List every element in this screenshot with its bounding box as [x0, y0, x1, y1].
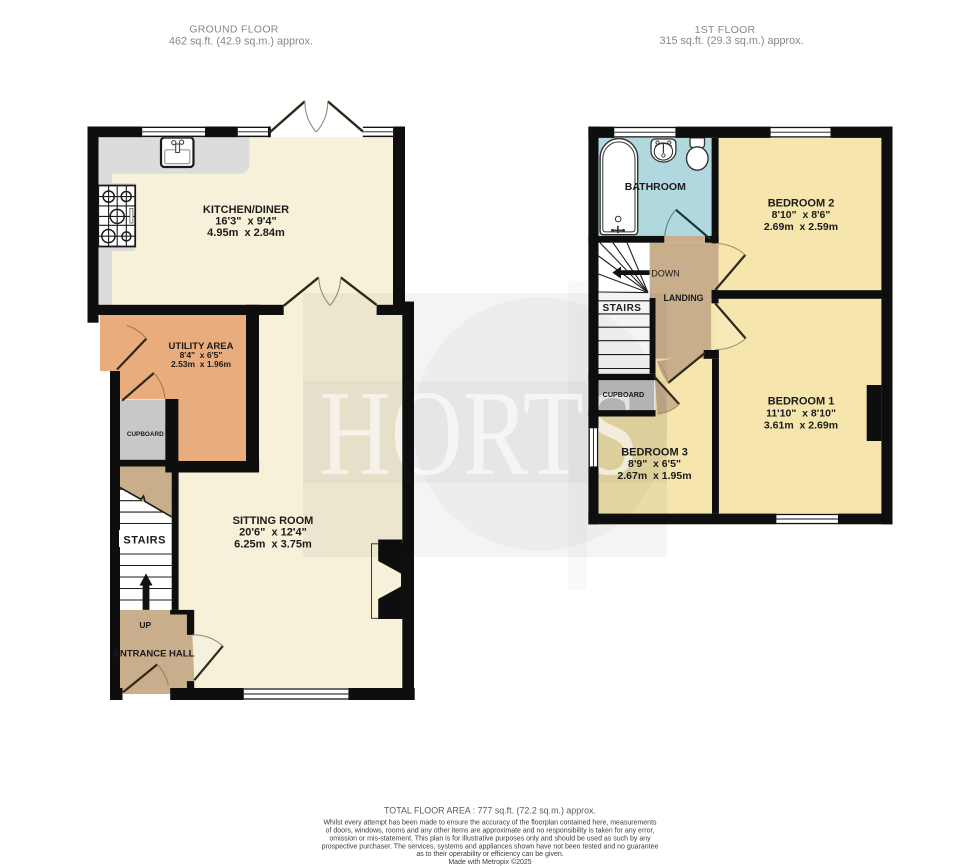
svg-text:BEDROOM 1: BEDROOM 1 [768, 396, 835, 408]
svg-text:SITTING ROOM: SITTING ROOM [233, 515, 314, 527]
svg-text:2.53m x 1.96m: 2.53m x 1.96m [171, 359, 231, 369]
svg-text:of doors, windows, rooms and a: of doors, windows, rooms and any other i… [326, 828, 655, 835]
svg-text:as to their operability or eff: as to their operability or efficiency ca… [416, 851, 563, 858]
svg-text:2.67m x 1.95m: 2.67m x 1.95m [617, 470, 691, 482]
svg-text:2.69m x 2.59m: 2.69m x 2.59m [764, 221, 838, 233]
svg-text:4.95m x 2.84m: 4.95m x 2.84m [207, 227, 285, 239]
svg-text:8'10" x 8'6": 8'10" x 8'6" [772, 209, 831, 221]
svg-text:Made with Metropix ©2025: Made with Metropix ©2025 [448, 858, 531, 866]
svg-text:prospective purchaser. The ser: prospective purchaser. The services, sys… [322, 843, 659, 850]
svg-text:omission or mis-statement. Thi: omission or mis-statement. This plan is … [329, 835, 651, 842]
svg-text:315 sq.ft. (29.3 sq.m.) approx: 315 sq.ft. (29.3 sq.m.) approx. [659, 35, 803, 47]
svg-text:STAIRS: STAIRS [123, 535, 166, 547]
svg-text:6.25m x 3.75m: 6.25m x 3.75m [234, 539, 312, 551]
svg-text:8'9" x 6'5": 8'9" x 6'5" [628, 458, 681, 470]
svg-text:3.61m x 2.69m: 3.61m x 2.69m [764, 420, 838, 432]
svg-text:KITCHEN/DINER: KITCHEN/DINER [203, 204, 289, 216]
svg-text:BATHROOM: BATHROOM [625, 181, 686, 193]
svg-text:16'3" x 9'4": 16'3" x 9'4" [215, 215, 277, 227]
svg-text:ENTRANCE HALL: ENTRANCE HALL [114, 648, 195, 659]
svg-text:LANDING: LANDING [663, 293, 703, 303]
svg-text:DOWN: DOWN [651, 269, 680, 279]
svg-text:462 sq.ft. (42.9 sq.m.) approx: 462 sq.ft. (42.9 sq.m.) approx. [169, 36, 313, 48]
svg-text:TOTAL FLOOR AREA : 777 sq.ft.: TOTAL FLOOR AREA : 777 sq.ft. (72.2 sq.m… [384, 805, 596, 815]
svg-text:BEDROOM 2: BEDROOM 2 [768, 198, 835, 210]
svg-text:20'6" x 12'4": 20'6" x 12'4" [239, 527, 307, 539]
svg-text:CUPBOARD: CUPBOARD [603, 390, 645, 399]
svg-text:CUPBOARD: CUPBOARD [127, 431, 164, 438]
svg-text:GROUND FLOOR: GROUND FLOOR [189, 24, 278, 36]
svg-text:Whilst every attempt has been: Whilst every attempt has been made to en… [323, 820, 657, 827]
svg-text:UP: UP [139, 620, 151, 630]
svg-text:BEDROOM 3: BEDROOM 3 [621, 447, 688, 459]
svg-text:11'10" x 8'10": 11'10" x 8'10" [766, 407, 836, 419]
svg-text:STAIRS: STAIRS [603, 303, 642, 314]
